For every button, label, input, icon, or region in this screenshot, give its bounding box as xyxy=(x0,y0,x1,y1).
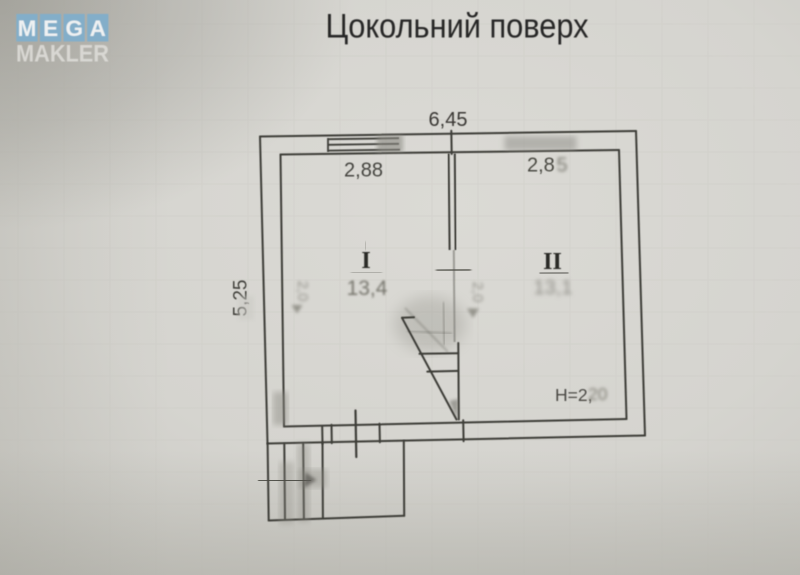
svg-text:13,1: 13,1 xyxy=(534,277,573,299)
svg-text:I: I xyxy=(361,248,370,274)
svg-text:G: G xyxy=(65,16,83,41)
svg-text:A: A xyxy=(90,16,106,41)
svg-text:E: E xyxy=(43,16,58,41)
svg-text:20: 20 xyxy=(588,384,608,404)
svg-text:6,45: 6,45 xyxy=(429,109,468,131)
svg-text:MAKLER: MAKLER xyxy=(16,41,109,68)
svg-text:2,88: 2,88 xyxy=(344,160,383,182)
svg-text:Цокольний поверх: Цокольний поверх xyxy=(326,8,589,46)
svg-text:M: M xyxy=(18,16,37,41)
svg-text:H=2,: H=2, xyxy=(555,385,592,405)
svg-text:2,8: 2,8 xyxy=(527,155,555,177)
svg-text:2,0: 2,0 xyxy=(294,281,311,302)
svg-text:II: II xyxy=(543,249,562,275)
svg-text:5: 5 xyxy=(557,155,568,177)
svg-text:2,0: 2,0 xyxy=(469,282,486,303)
svg-text:13,4: 13,4 xyxy=(347,277,388,300)
